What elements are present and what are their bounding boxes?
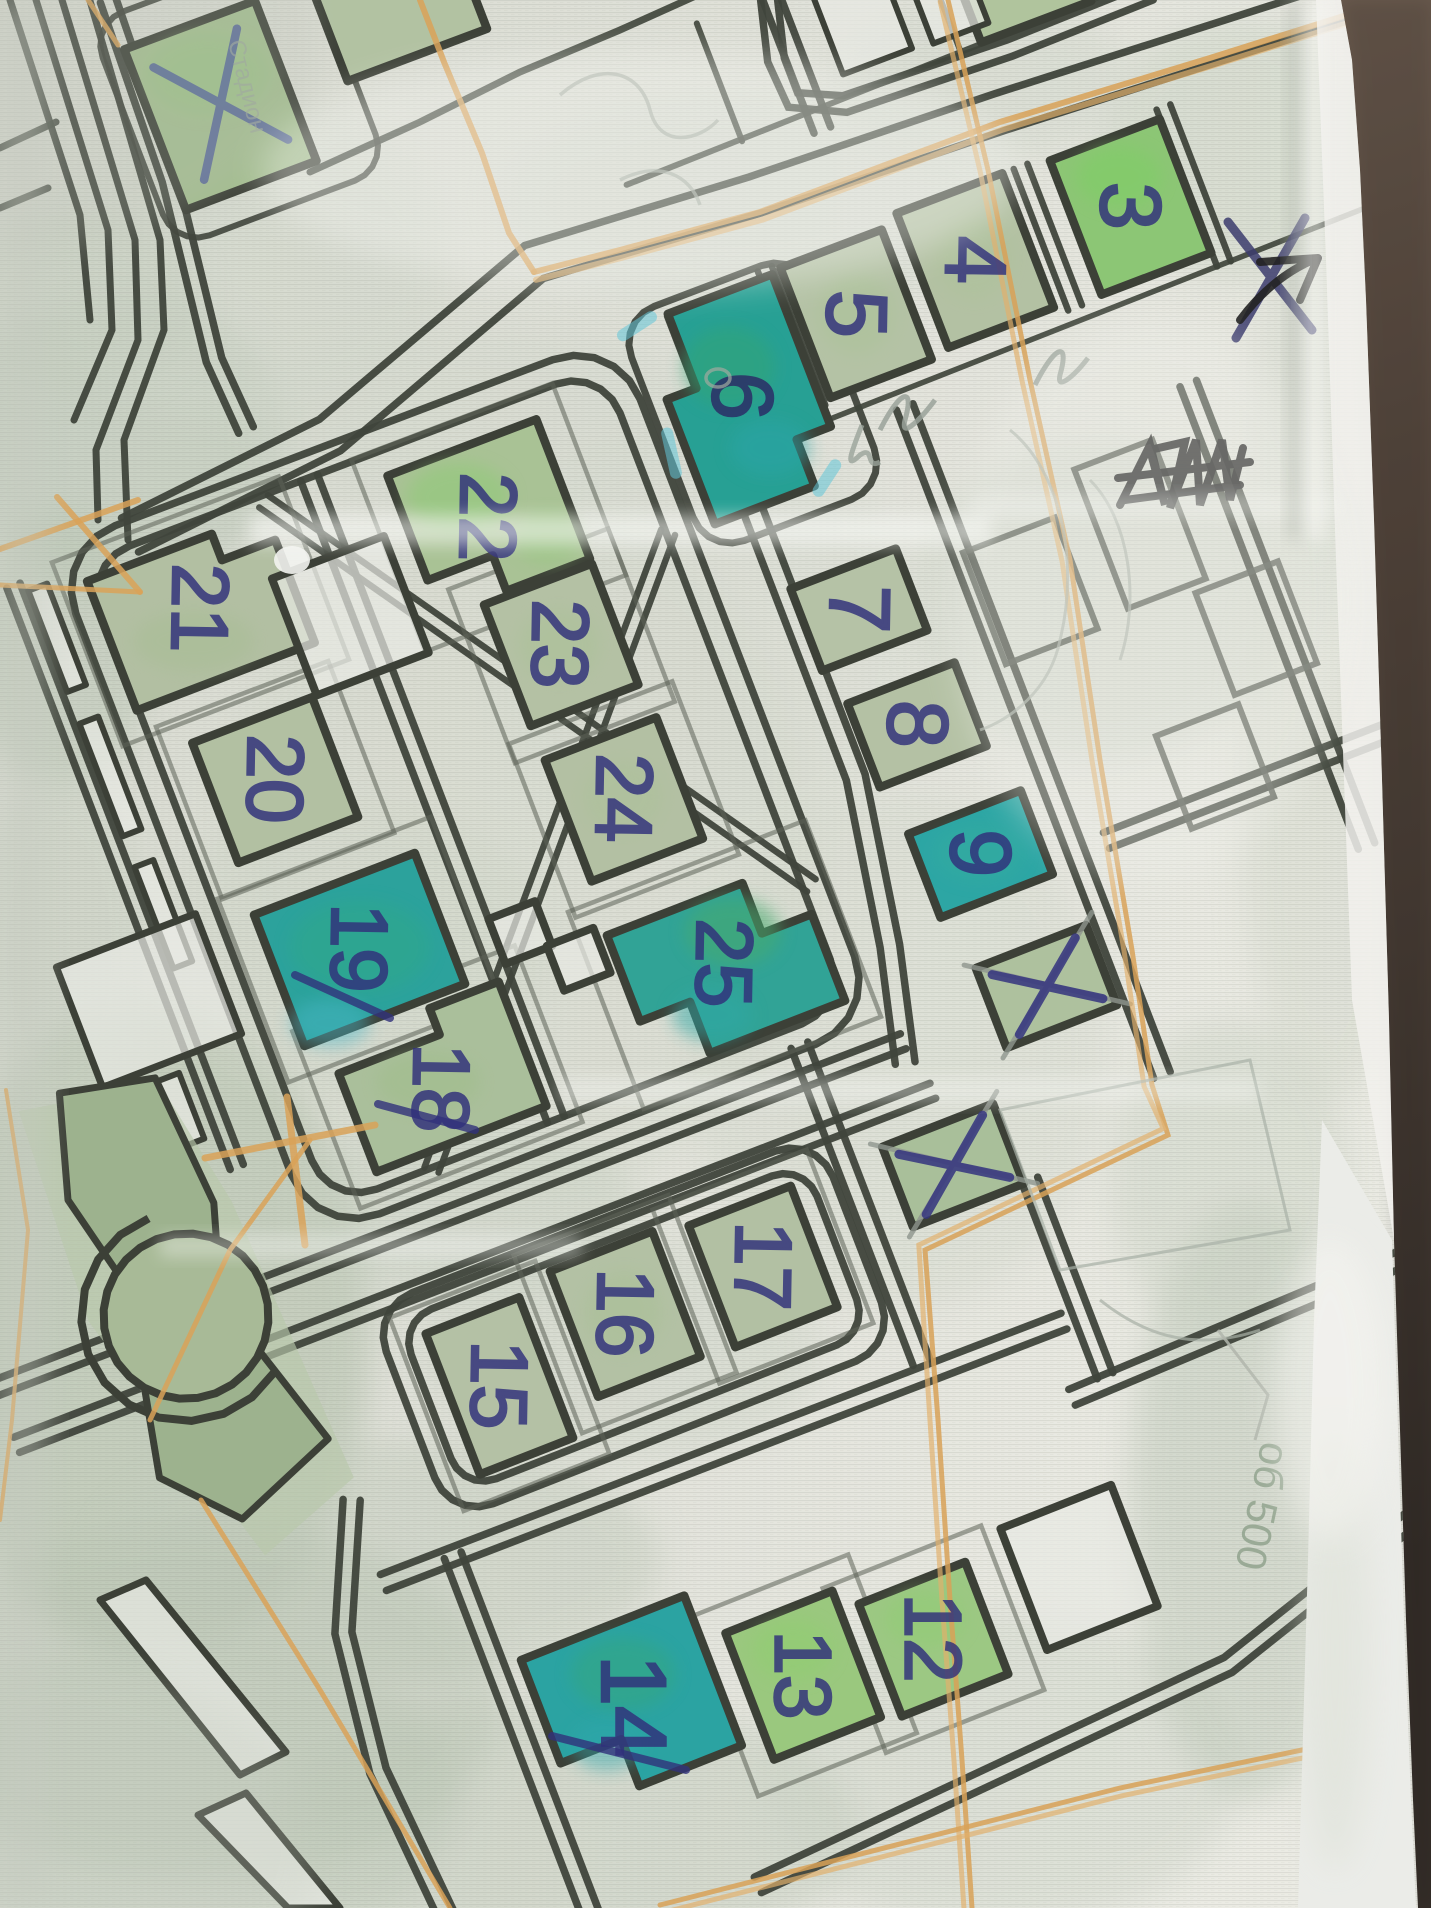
svg-text:15: 15 (454, 1340, 545, 1431)
svg-text:23: 23 (515, 599, 606, 690)
svg-text:20: 20 (230, 734, 321, 825)
svg-text:14: 14 (582, 1655, 684, 1757)
svg-text:24: 24 (579, 753, 670, 844)
svg-text:3: 3 (1082, 181, 1179, 231)
svg-text:13: 13 (759, 1631, 848, 1720)
svg-text:5: 5 (808, 289, 905, 339)
svg-text:12: 12 (889, 1594, 978, 1683)
svg-text:21: 21 (155, 563, 246, 654)
svg-text:6: 6 (694, 371, 791, 421)
svg-text:19: 19 (314, 903, 405, 994)
svg-text:7: 7 (811, 584, 908, 634)
svg-text:16: 16 (580, 1268, 671, 1359)
svg-text:9: 9 (932, 828, 1029, 878)
svg-text:8: 8 (869, 699, 966, 749)
svg-text:25: 25 (679, 918, 770, 1009)
svg-text:17: 17 (718, 1221, 809, 1312)
